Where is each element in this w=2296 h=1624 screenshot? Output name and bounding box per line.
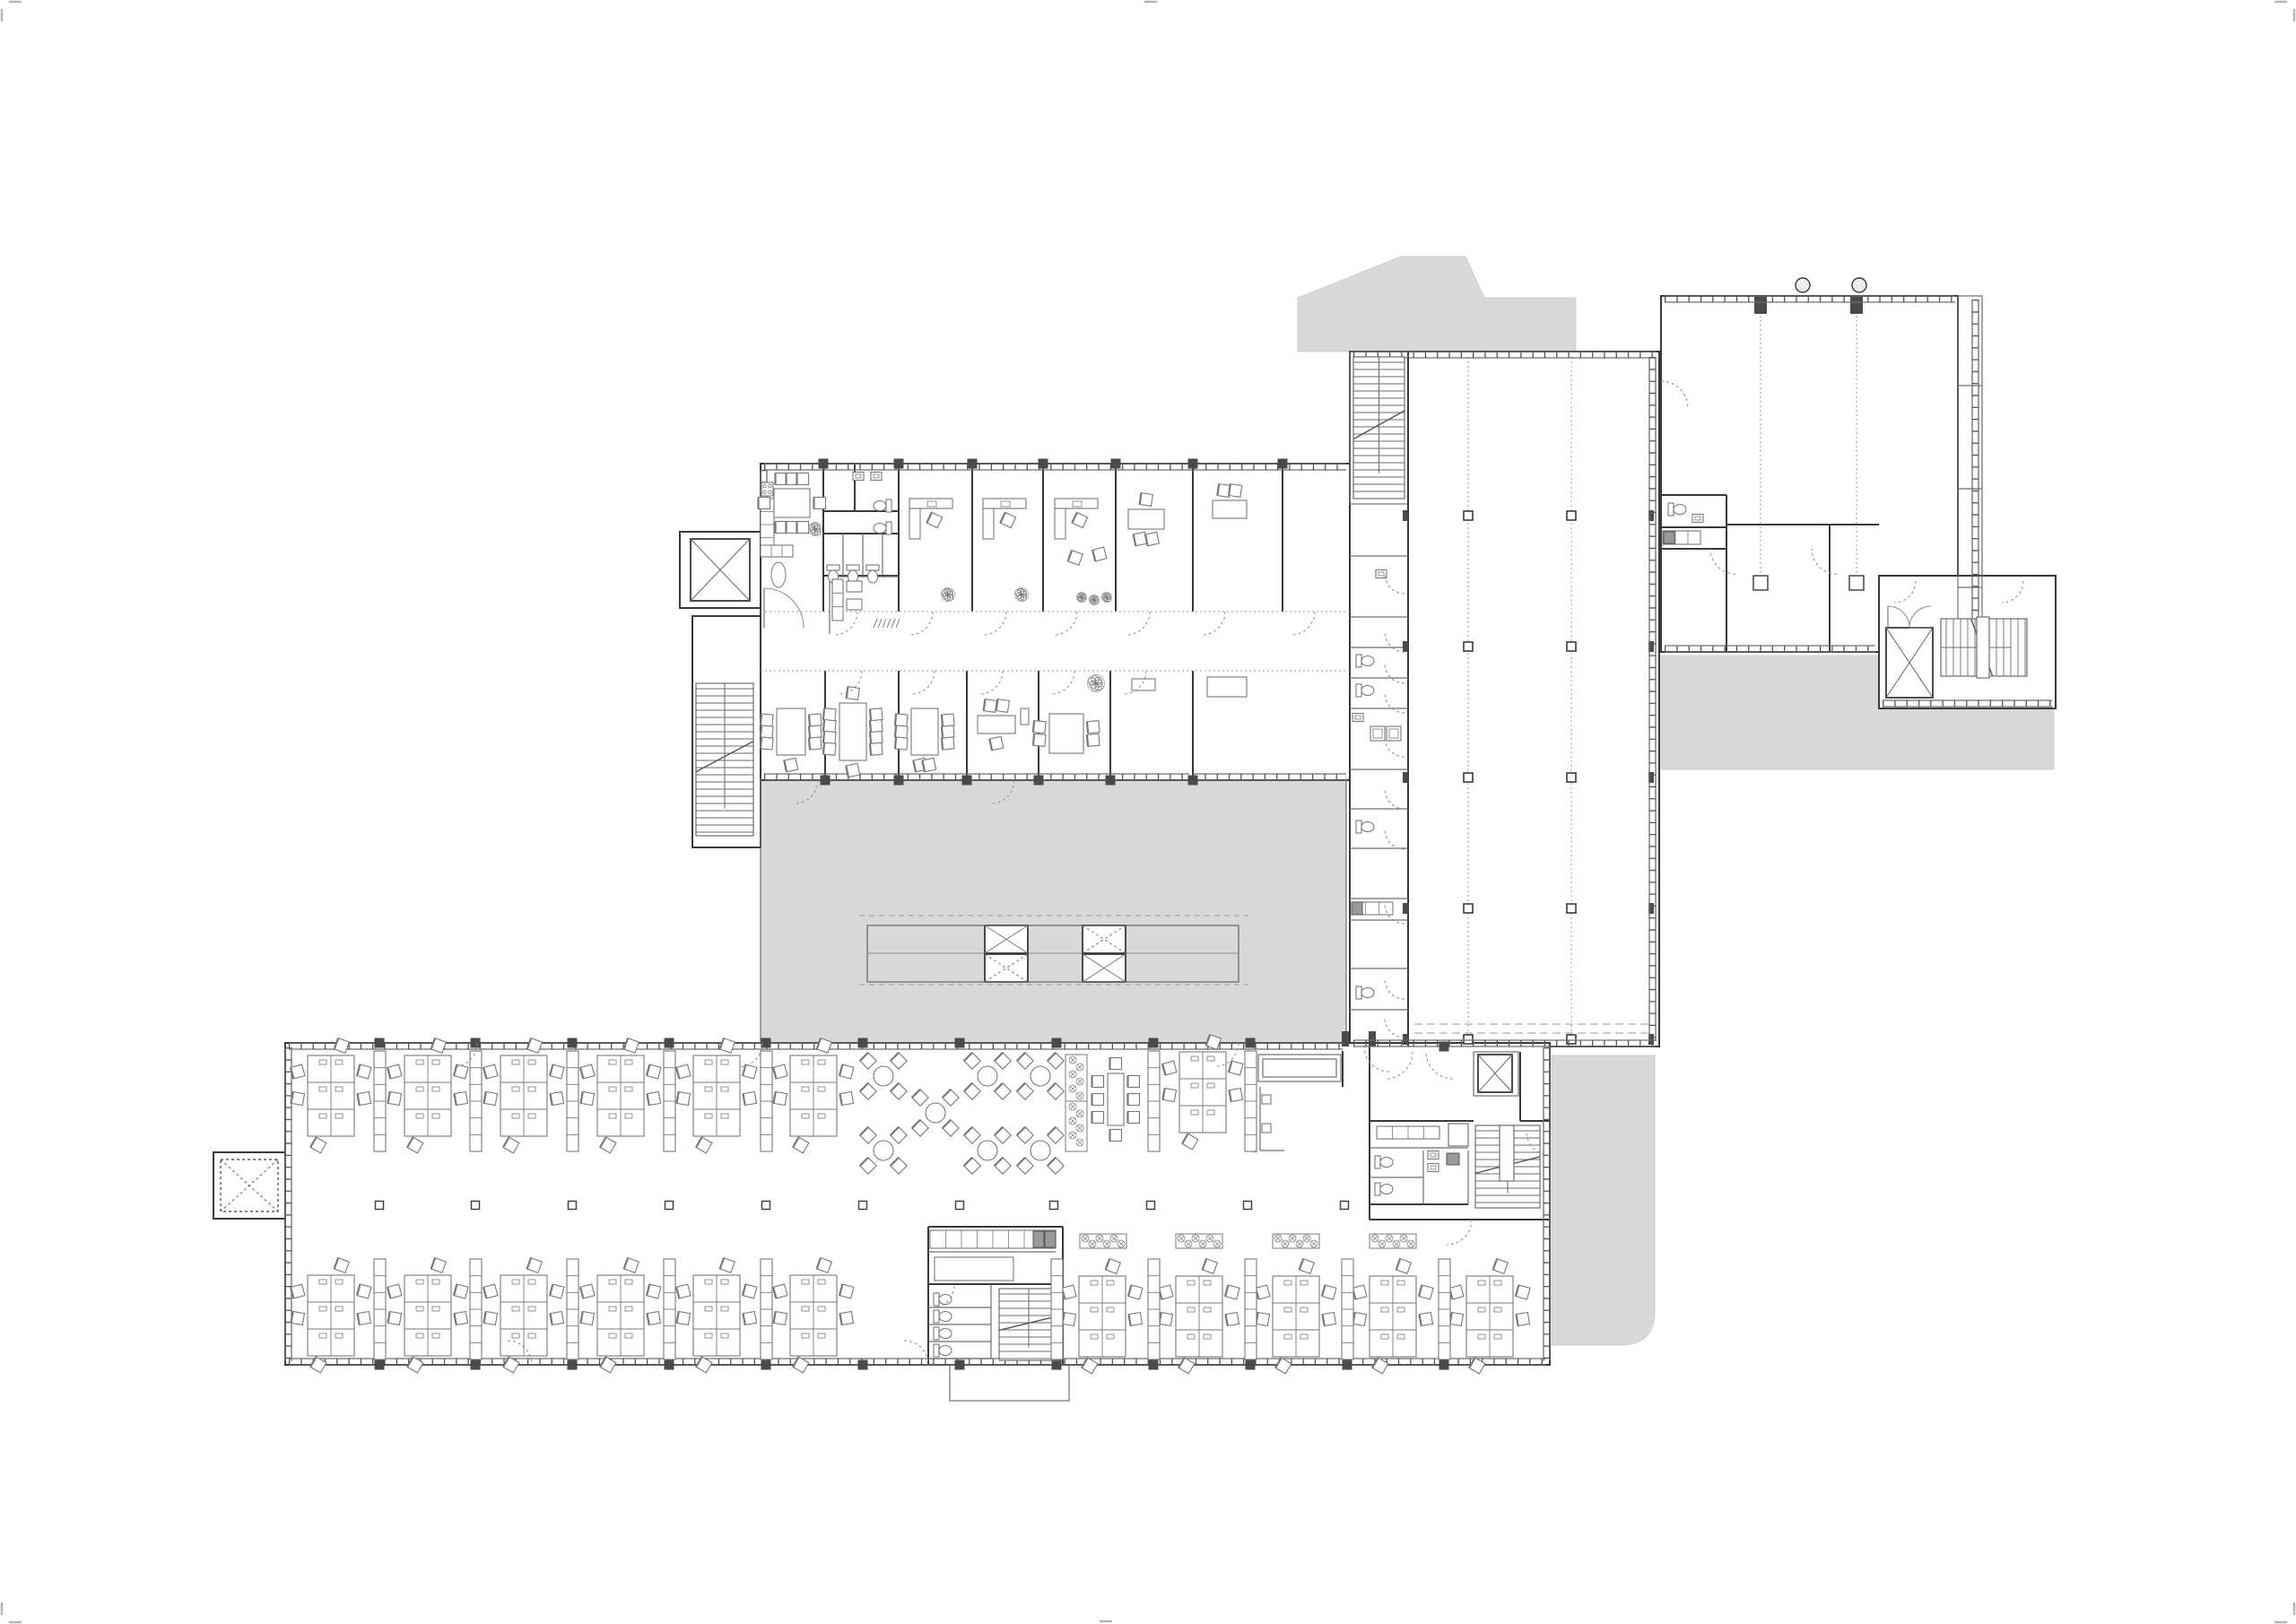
drawing-page (0, 0, 2296, 1624)
floor-plan (0, 0, 2296, 1624)
